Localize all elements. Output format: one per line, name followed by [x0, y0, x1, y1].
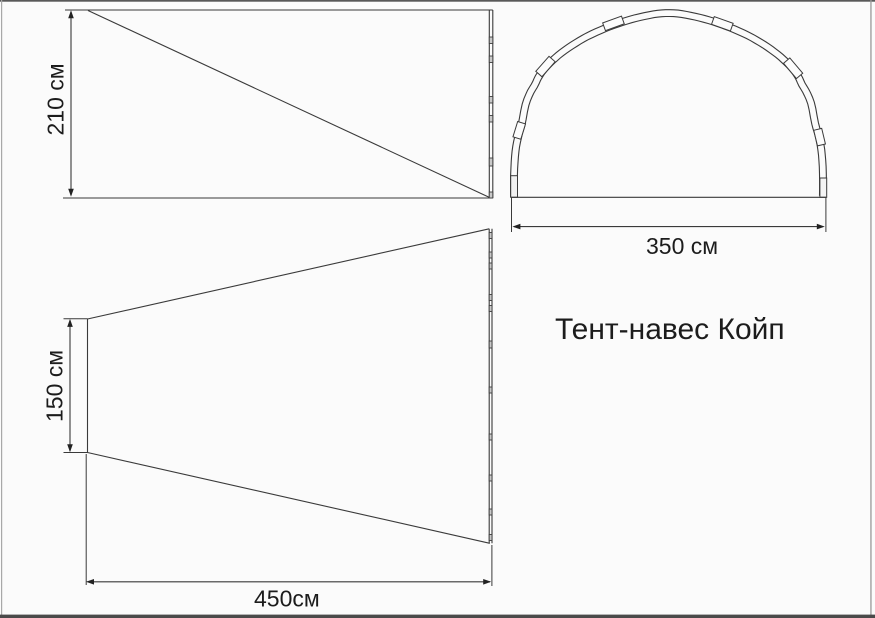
svg-text:350 см: 350 см — [646, 233, 718, 259]
svg-text:150 см: 150 см — [42, 350, 68, 422]
svg-text:210 см: 210 см — [43, 63, 69, 135]
svg-text:Тент-навес Койп: Тент-навес Койп — [555, 313, 785, 346]
svg-text:450см: 450см — [254, 586, 320, 612]
